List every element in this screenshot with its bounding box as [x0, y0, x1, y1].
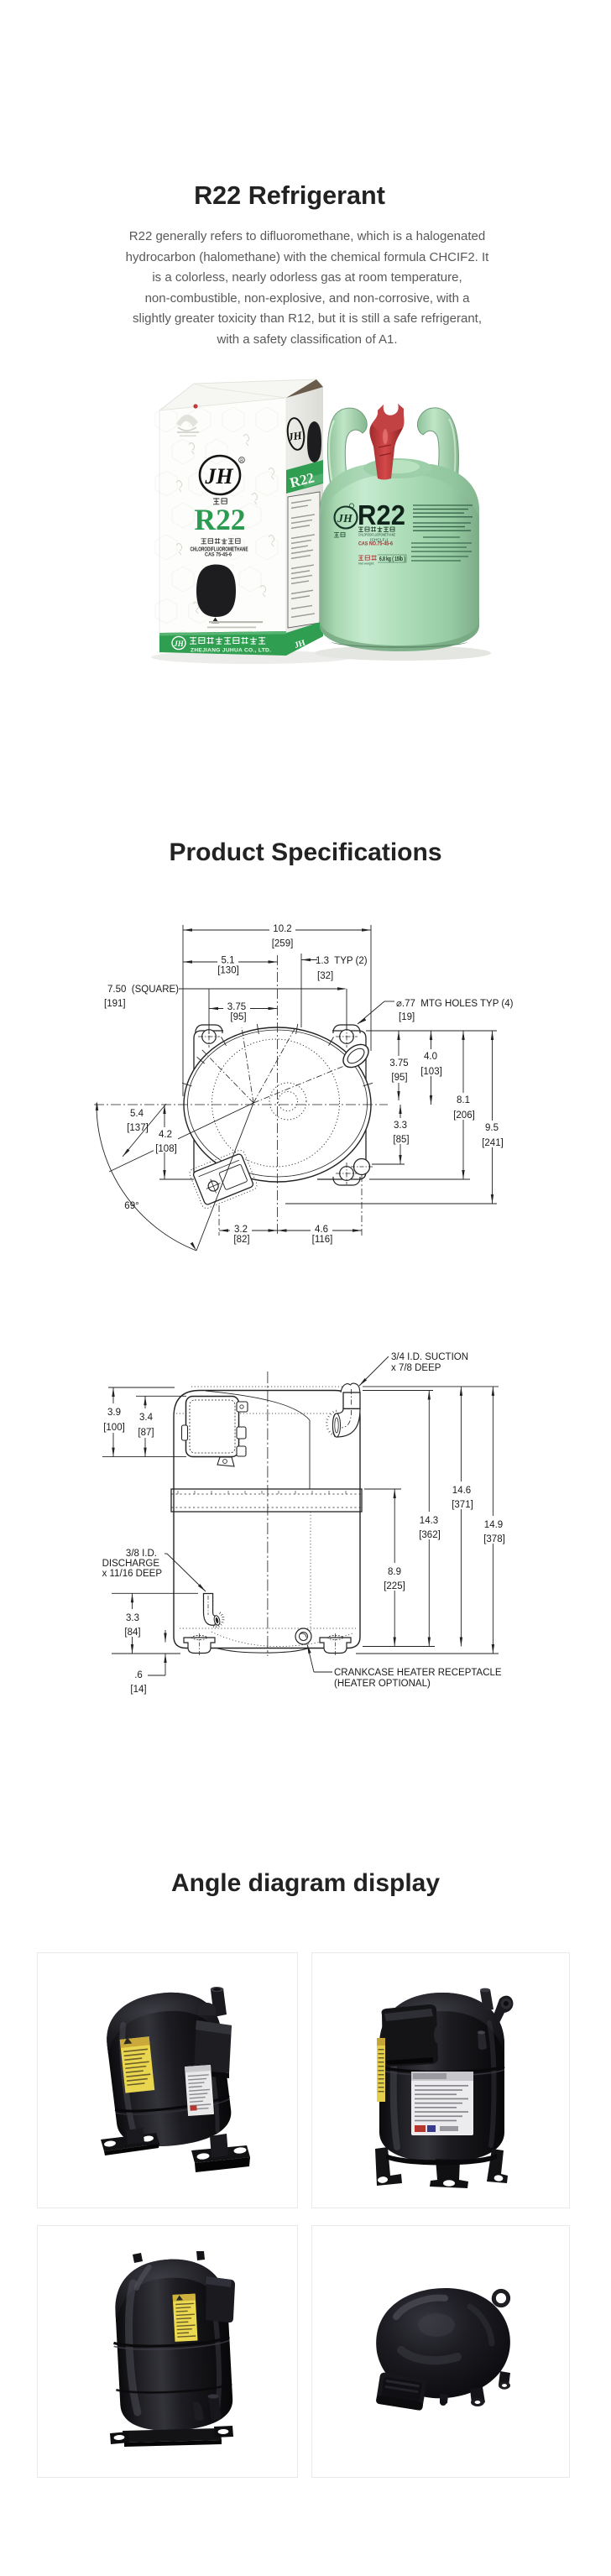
svg-text:[378]: [378]	[483, 1534, 505, 1544]
svg-text:9.5: 9.5	[485, 1123, 499, 1133]
svg-text:3/8 I.D.: 3/8 I.D.	[126, 1549, 157, 1559]
svg-text:8.1: 8.1	[457, 1095, 470, 1105]
svg-text:[100]: [100]	[103, 1423, 125, 1433]
svg-text:[206]: [206]	[453, 1110, 475, 1121]
svg-text:5.4: 5.4	[130, 1109, 144, 1119]
svg-text:R22: R22	[195, 503, 246, 536]
svg-text:3.3: 3.3	[126, 1613, 139, 1623]
svg-text:[85]: [85]	[393, 1135, 409, 1145]
svg-text:[87]: [87]	[138, 1428, 154, 1438]
svg-text:[191]: [191]	[104, 999, 126, 1009]
svg-text:Net weight:: Net weight:	[358, 562, 374, 566]
svg-text:[14]: [14]	[130, 1685, 146, 1695]
svg-text:[84]: [84]	[124, 1628, 140, 1638]
svg-text:[116]: [116]	[312, 1235, 333, 1245]
svg-text:[241]: [241]	[482, 1138, 504, 1148]
svg-text:CAS NO.75-45-6: CAS NO.75-45-6	[358, 542, 394, 547]
svg-text:4.6: 4.6	[315, 1225, 328, 1235]
svg-text:DISCHARGE: DISCHARGE	[102, 1559, 160, 1569]
svg-text:3/4 I.D. SUCTION: 3/4 I.D. SUCTION	[391, 1352, 468, 1362]
svg-text:⌀.77 MTG HOLES TYP (4): ⌀.77 MTG HOLES TYP (4)	[396, 999, 514, 1009]
svg-text:14.9: 14.9	[484, 1520, 503, 1530]
svg-text:[225]: [225]	[384, 1581, 405, 1591]
svg-text:3.75: 3.75	[389, 1058, 408, 1069]
svg-text:.6: .6	[134, 1670, 143, 1680]
svg-text:7.50 (SQUARE): 7.50 (SQUARE)	[107, 985, 179, 995]
svg-text:JH: JH	[286, 429, 303, 443]
svg-text:[95]: [95]	[230, 1012, 246, 1022]
svg-text:JH: JH	[204, 464, 233, 489]
svg-text:3.9: 3.9	[107, 1408, 121, 1418]
svg-text:6.8 kg ( 15lb ): 6.8 kg ( 15lb )	[379, 556, 405, 562]
svg-text:R22: R22	[358, 499, 405, 530]
svg-text:[103]: [103]	[420, 1067, 442, 1077]
svg-text:[19]: [19]	[399, 1012, 415, 1022]
svg-text:8.9: 8.9	[388, 1567, 401, 1577]
svg-text:CAS 75-45-6: CAS 75-45-6	[205, 552, 232, 558]
svg-text:4.2: 4.2	[159, 1130, 172, 1140]
svg-text:x 11/16 DEEP: x 11/16 DEEP	[102, 1569, 163, 1579]
svg-text:3.75: 3.75	[227, 1002, 246, 1012]
svg-text:14.3: 14.3	[420, 1516, 438, 1526]
svg-text:x 7/8 DEEP: x 7/8 DEEP	[391, 1363, 441, 1373]
svg-text:3.4: 3.4	[139, 1413, 154, 1423]
svg-text:3.2: 3.2	[234, 1225, 248, 1235]
svg-text:10.2: 10.2	[273, 924, 291, 934]
svg-text:[32]: [32]	[317, 971, 333, 981]
svg-text:1.3 TYP (2): 1.3 TYP (2)	[316, 956, 368, 966]
svg-text:(HEATER OPTIONAL): (HEATER OPTIONAL)	[334, 1679, 431, 1689]
svg-text:[95]: [95]	[391, 1073, 407, 1083]
svg-text:3.3: 3.3	[394, 1121, 407, 1131]
svg-text:[137]: [137]	[127, 1123, 149, 1133]
svg-text:CHLORODIFLUOROMETHANE: CHLORODIFLUOROMETHANE	[358, 533, 395, 537]
svg-text:69°: 69°	[124, 1201, 138, 1211]
svg-text:CRANKCASE HEATER RECEPTACLE: CRANKCASE HEATER RECEPTACLE	[334, 1668, 502, 1678]
svg-text:14.6: 14.6	[452, 1486, 471, 1496]
svg-text:[130]: [130]	[217, 966, 239, 976]
svg-text:[82]: [82]	[233, 1235, 249, 1245]
svg-text:JH: JH	[337, 513, 353, 525]
svg-text:[371]: [371]	[452, 1500, 473, 1510]
svg-text:R: R	[240, 459, 243, 464]
svg-text:ZHEJIANG JUHUA CO., LTD.: ZHEJIANG JUHUA CO., LTD.	[191, 648, 271, 654]
svg-text:[362]: [362]	[419, 1530, 441, 1540]
svg-text:[108]: [108]	[155, 1144, 177, 1154]
svg-text:4.0: 4.0	[424, 1052, 437, 1062]
svg-text:5.1: 5.1	[222, 956, 235, 966]
svg-text:[259]: [259]	[272, 939, 294, 949]
svg-text:JH: JH	[173, 640, 185, 648]
